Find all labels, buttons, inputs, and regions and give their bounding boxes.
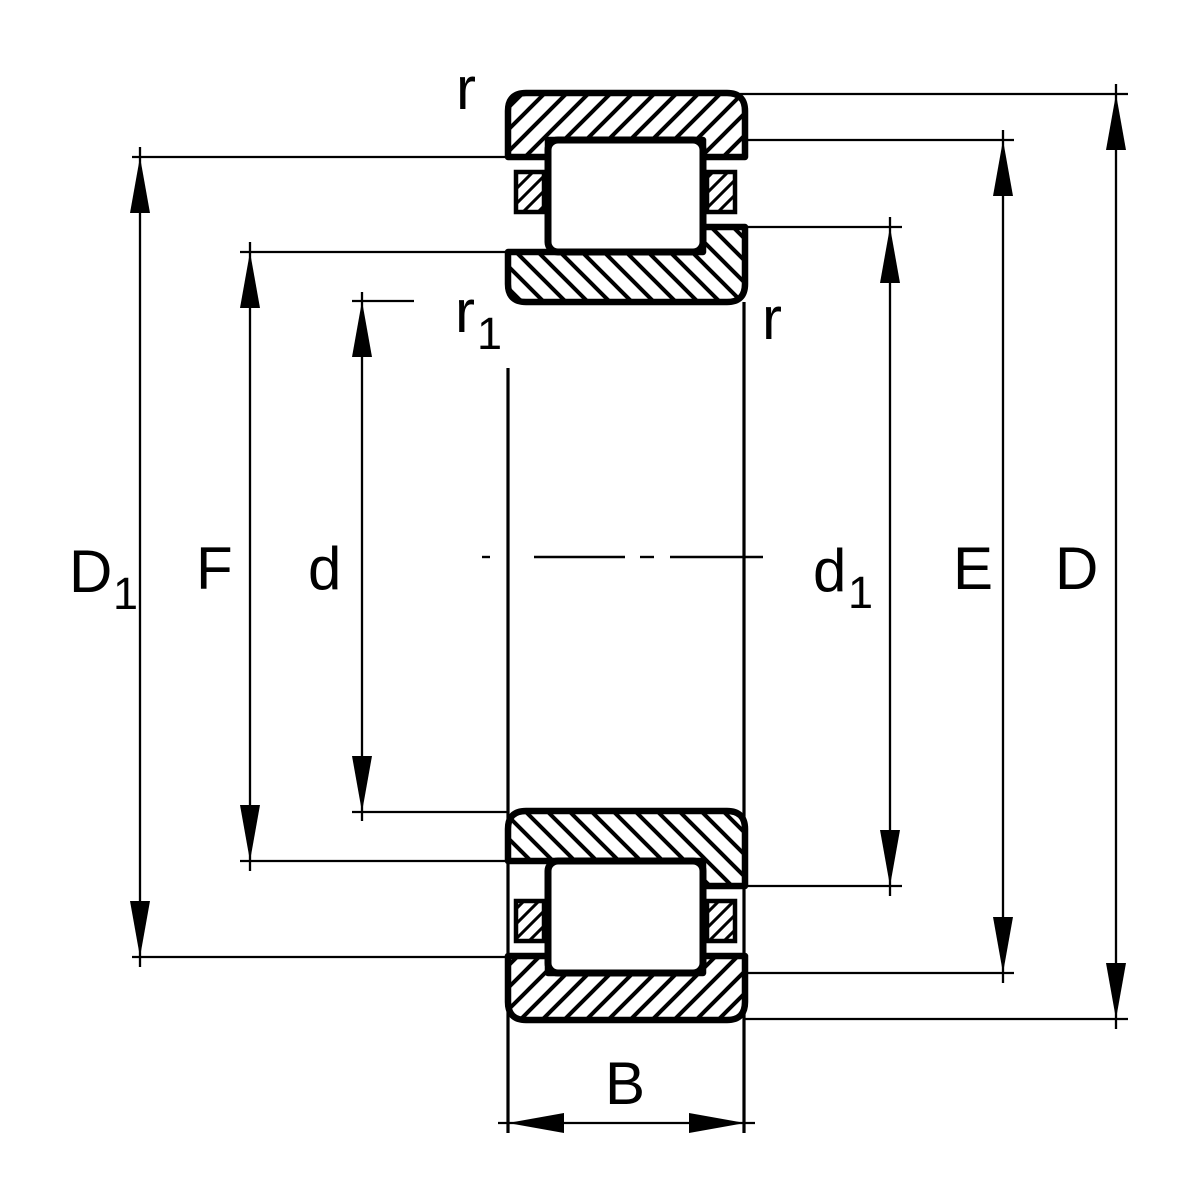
bottom-roller [548,861,703,973]
arrowhead-E-down [993,917,1013,973]
label-d1: d [813,537,846,604]
arrowhead-F-down [240,805,260,861]
dimension-D1: D 1 [69,147,508,967]
label-B: B [605,1050,645,1117]
label-d: d [308,535,341,602]
dimension-B: B [498,1050,755,1133]
top-bearing-section [508,93,745,302]
top-cage-right [707,172,735,212]
arrowhead-F-up [240,252,260,308]
top-roller [548,140,703,252]
arrowhead-B-left [508,1113,564,1133]
bearing-dimension-drawing: D 1 F d d 1 E [0,0,1200,1200]
dimension-E: E [745,130,1014,983]
dimension-d: d [308,292,508,821]
arrowhead-D-up [1106,94,1126,150]
top-cage-left [516,172,544,212]
arrowhead-E-up [993,140,1013,196]
label-D: D [1055,535,1098,602]
label-d1-subscript: 1 [848,567,873,618]
label-r-top: r [456,55,476,122]
bottom-cage-left [516,901,544,941]
arrowhead-d1-down [880,830,900,886]
bottom-cage-right [707,901,735,941]
label-r1: r [455,278,475,345]
label-D1: D [69,538,112,605]
label-r1-subscript: 1 [477,308,502,359]
label-r-right: r [762,285,782,352]
bottom-bearing-section [508,811,745,1020]
arrowhead-d1-up [880,227,900,283]
dimension-D: D [740,84,1128,1029]
label-F: F [196,535,233,602]
arrowhead-D-down [1106,963,1126,1019]
label-E: E [953,535,993,602]
drawing-canvas: D 1 F d d 1 E [0,0,1200,1200]
label-D1-subscript: 1 [113,568,138,619]
arrowhead-D1-down [130,901,150,957]
arrowhead-D1-up [130,157,150,213]
arrowhead-d-down [352,756,372,812]
arrowhead-d-up [352,301,372,357]
arrowhead-B-right [689,1113,745,1133]
